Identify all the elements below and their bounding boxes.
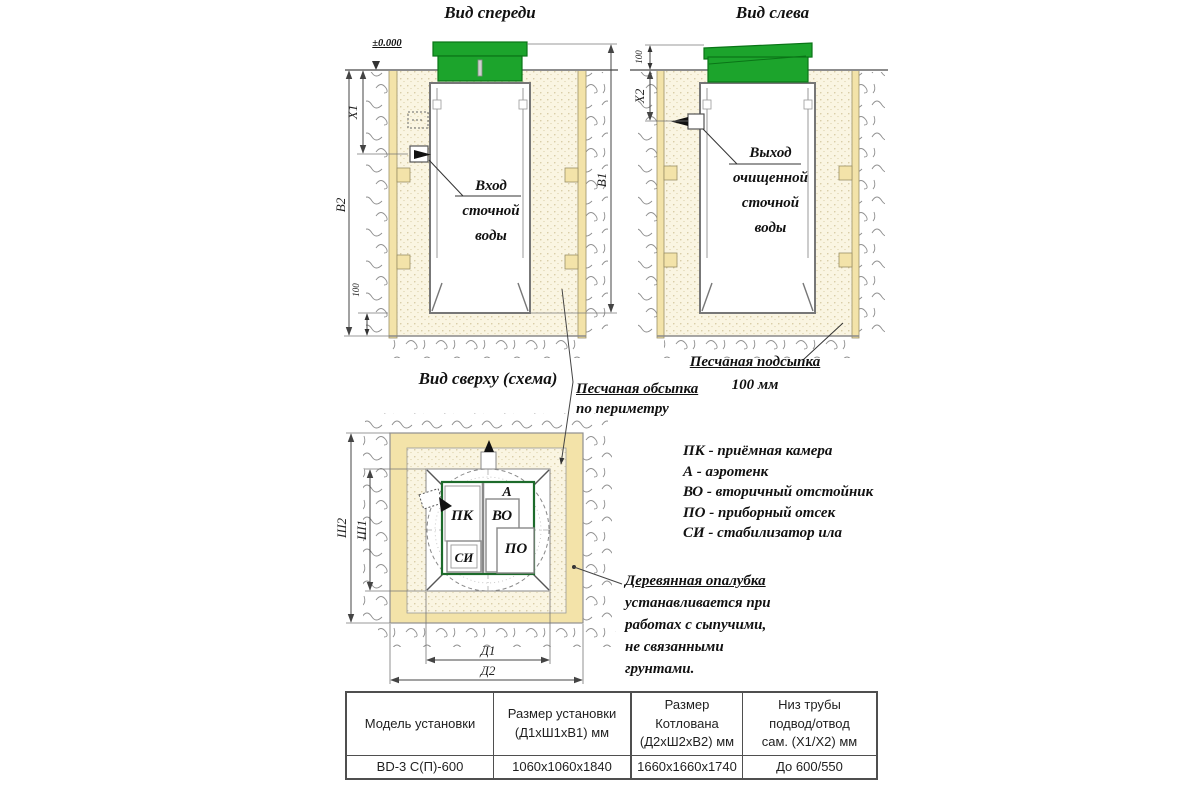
outlet-label-line4: воды [722,216,819,241]
dim-label-bedding-100: 100 [351,283,361,297]
spacer-block [839,166,852,180]
table-header-model: Модель установки [347,693,493,755]
table-header-unit-size: Размер установки (Д1хШ1хВ1) мм [493,693,630,755]
tank-lid [708,57,808,82]
dim-label-l1: Д1 [479,643,496,658]
header-pit-line3: (Д2хШ2хВ2) мм [640,733,734,752]
tank-fitting [519,100,527,109]
dim-label-lid-100: 100 [634,50,644,64]
front-view-title: Вид спереди [415,3,565,23]
outlet-pipe [688,114,704,129]
soil-texture [390,338,585,358]
sand-bedding-line1: Песчаная подсыпка [678,351,832,374]
compartment-label-a: А [501,485,511,500]
compartment-label-vo: ВО [491,508,512,524]
pit-size-value: 1660х1660х1740 [637,758,737,777]
header-pipe-line1: Низ трубы [778,696,841,715]
model-value: BD-3 С(П)-600 [377,758,464,777]
vent-notch [481,452,496,469]
table-cell-pit-size: 1660х1660х1740 [630,755,742,778]
tank-lid [433,42,527,56]
level-mark-triangle [372,61,380,70]
soil-texture [582,432,612,624]
inlet-label-line1: Вход [448,174,534,199]
pipe-depth-value: До 600/550 [776,758,843,777]
table-cell-model: BD-3 С(П)-600 [347,755,493,778]
installation-scheme-page: X1 В2 100 В1 [0,0,1200,800]
soil-texture [365,413,608,434]
formwork-board [389,70,397,338]
table-header-pit-size: Размер Котлована (Д2хШ2хВ2) мм [630,693,742,755]
compartment-label-pk: ПК [450,508,474,524]
sand-backfill-line1: Песчаная обсыпка [576,379,701,399]
outlet-label: Выход очищенной сточной воды [722,141,819,241]
soil-texture [378,621,616,647]
formwork-board [852,70,859,338]
tank-fitting [804,100,812,109]
table-cell-pipe-depth: До 600/550 [742,755,876,778]
formwork-note: Деревянная опалубка устанавливается при … [625,570,785,680]
spacer-block [397,168,410,182]
formwork-note-line1: Деревянная опалубка [625,570,785,592]
dim-label-b1: В1 [594,173,609,187]
dim-label-x2: X2 [632,88,647,104]
lid-handle [478,60,482,76]
header-pit-line2: Котлована [655,715,719,734]
sand-backfill-label: Песчаная обсыпка по периметру [576,379,701,419]
inlet-label-line2: сточной [448,199,534,224]
inlet-label-line3: воды [448,224,534,249]
soil-texture [859,72,885,338]
spacer-block [565,255,578,269]
compartment-label-si: СИ [455,550,475,565]
spacer-block [839,253,852,267]
header-model-line1: Модель установки [365,715,475,734]
dim-label-l2: Д2 [479,663,496,678]
unit-size-value: 1060х1060х1840 [512,758,612,777]
formwork-board [657,70,664,338]
formwork-note-line5: грунтами. [625,658,785,680]
table-cell-unit-size: 1060х1060х1840 [493,755,630,778]
legend-item-si: СИ - стабилизатор ила [683,523,873,544]
dim-label-b2: В2 [333,197,348,212]
header-pipe-line3: сам. (Х1/Х2) мм [762,733,857,752]
level-mark-value: ±0.000 [372,38,401,49]
legend-item-pk: ПК - приёмная камера [683,441,873,462]
legend-item-a: А - аэротенк [683,462,873,483]
formwork-note-line2: устанавливается при [625,592,785,614]
formwork-note-line3: работах с сыпучими, [625,614,785,636]
soil-texture [638,72,657,338]
spacer-block [664,166,677,180]
dim-label-w2: Ш2 [334,517,349,539]
header-pipe-line2: подвод/отвод [769,715,850,734]
compartment-label-po: ПО [504,541,528,557]
soil-texture [366,72,389,338]
compartment-legend: ПК - приёмная камера А - аэротенк ВО - в… [683,441,873,544]
dim-label-x1: X1 [345,105,360,120]
tank-fitting [433,100,441,109]
legend-item-vo: ВО - вторичный отстойник [683,482,873,503]
legend-item-po: ПО - приборный отсек [683,503,873,524]
level-mark-label: ±0.000 [362,38,412,49]
header-unit-line2: (Д1хШ1хВ1) мм [515,724,609,743]
inlet-label: Вход сточной воды [448,174,534,249]
formwork-board [578,70,586,338]
spec-table: Модель установки Размер установки (Д1хШ1… [345,691,878,780]
top-view-title: Вид сверху (схема) [402,369,574,389]
outlet-label-line3: сточной [722,191,819,216]
spacer-block [664,253,677,267]
outlet-label-line1: Выход [722,141,819,166]
tank-fitting [703,100,711,109]
sand-bedding-line2: 100 мм [678,374,832,397]
spacer-block [565,168,578,182]
soil-texture [586,72,608,338]
left-view-title: Вид слева [700,3,845,23]
header-unit-line1: Размер установки [508,705,616,724]
formwork-note-line4: не связанными [625,636,785,658]
outlet-label-line2: очищенной [722,166,819,191]
sand-backfill-line2: по периметру [576,399,701,419]
spacer-block [397,255,410,269]
header-pit-line1: Размер [665,696,710,715]
table-header-pipe-depth: Низ трубы подвод/отвод сам. (Х1/Х2) мм [742,693,876,755]
sand-bedding-label: Песчаная подсыпка 100 мм [678,351,832,397]
dim-label-w1: Ш1 [354,520,369,541]
